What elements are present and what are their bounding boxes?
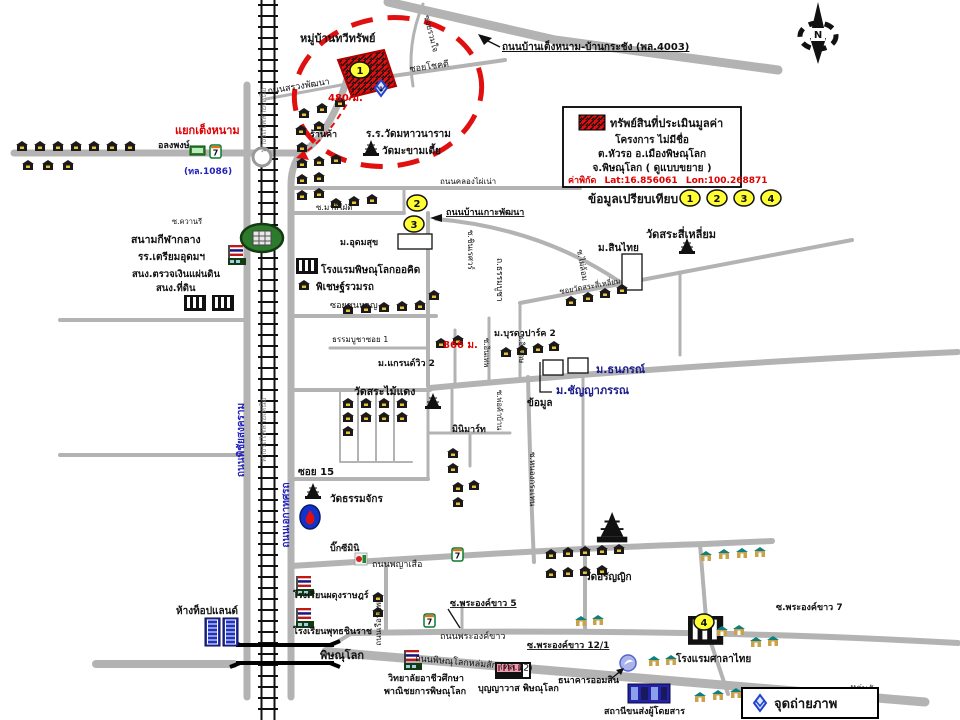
bigc-mini-icon: [355, 553, 367, 565]
road-bankoh-path: [436, 219, 620, 282]
soi-chinnaret-label2: ซ.ชินเรศวร์: [466, 230, 476, 270]
m-sinthai-label: ม.สินไทย: [598, 241, 639, 254]
distance-480-label: 480 ม.: [328, 93, 363, 104]
compass-south-spike: [810, 38, 826, 64]
soi-inket-label: ซ.อินเกษ: [517, 334, 526, 363]
wat-srasiliam-label: วัดสระสี่เหลี่ยม: [646, 226, 716, 241]
m-thanaporn-block-2: [568, 358, 588, 373]
soi-pokaban-label: ซ.พ่อค้าบ้าน: [495, 390, 504, 430]
map-labels: หมู่บ้านทวีทรัพย์ ถนนสรวงพัฒนา ซอยรวมใจ …: [131, 14, 879, 717]
shop-label: ร้านค้า: [310, 129, 337, 140]
legend-coord-label: ค่าพิกัด: [568, 175, 596, 186]
legend-district: ต.หัวรอ อ.เมืองพิษณุโลก: [598, 147, 706, 160]
tengnam-road-arrow: [478, 34, 492, 45]
wat-sramaidaeng-label: วัดสระไม้แดง: [354, 385, 415, 398]
bus-station-label: สถานีขนส่งผู้โดยสาร: [604, 705, 685, 717]
topland-building-icon-1: [205, 618, 220, 646]
m-grandview-label: ม.แกรนด์วิว 2: [378, 357, 435, 369]
soi-phraongkhao5-label: ซ.พระองค์ขาว 5: [450, 597, 517, 609]
route-1086-label: (ทล.1086): [184, 167, 232, 177]
soi-kwanree-label: ซ.ควานรี: [172, 217, 202, 226]
topland-building-icon-2: [223, 618, 238, 646]
village-label: หมู่บ้านทวีทรัพย์: [300, 32, 375, 46]
land-office-label: สนง.ที่ดิน: [156, 280, 196, 294]
tengnam-road-arrow-line: [486, 40, 500, 47]
hotel-orchid-label: โรงแรมพิษณุโลกออคิด: [320, 263, 420, 276]
m-thanaporn-block-1: [543, 360, 563, 375]
wat-aranyik-label: วัดอรัญญิก: [585, 571, 632, 583]
legend-project: โครงการ ไม่มีชื่อ: [614, 132, 689, 146]
college-label-line2: พาณิชยการพิษณุโลก: [384, 685, 466, 697]
m-udomsuk-label: ม.อุดมสุข: [340, 238, 378, 248]
seven-eleven-icon-2: [452, 548, 463, 561]
seven-eleven-icon-1: [210, 145, 221, 158]
pichet-label: พิเชษฐ์รวมรถ: [316, 281, 374, 293]
legend-lon: Lon:100.268871: [686, 176, 768, 186]
comparison-legend-2-num: 2: [714, 194, 721, 205]
road-ekathotsarot-label: ถนนเอกาทศรถ: [281, 482, 292, 547]
road-bankoh-label: ถนนบ้านเกาะพัฒนา: [446, 207, 524, 218]
khomun-label: ข้อมูล: [527, 397, 553, 410]
comparison-marker-1-number: 1: [357, 66, 364, 77]
comparison-marker-4-number: 4: [701, 618, 708, 629]
m-sinthai-block: [622, 254, 642, 290]
m-thanaporn-label: ม.ธนภรณ์: [596, 363, 646, 376]
seven-eleven-icon-3: [424, 614, 435, 627]
soi-phraongkhao121-label: ซ.พระองค์ขาว 12/1: [527, 639, 609, 651]
road-tengnam-label: ถนนบ้านเต็งหนาม-บ้านกระชัง (พล.4003): [502, 39, 689, 53]
comparison-marker-2-number: 2: [414, 199, 421, 210]
wat-aranyik-temple-icon: [597, 512, 627, 542]
railway-label-top: ทางรถไฟสายเหนือ: [259, 87, 268, 152]
soi-pailom-label: ซ.ไผ่ล้อม: [575, 249, 589, 282]
minimart-label: มินิมาร์ท: [452, 423, 486, 435]
highway12-label: ถนนพิษณุโลกหล่มสัก (ทล.12): [415, 653, 533, 674]
ptt-gas-station-icon: [300, 505, 320, 529]
road-payasuea-label: ถนนพญาเสือ: [372, 559, 422, 570]
land-office-building-icon: [212, 295, 234, 311]
soi-phraongkhao7-label: ซ.พระองค์ขาว 7: [776, 601, 843, 613]
boonyawat-label: บุญญาวาส พิษณุโลก: [478, 682, 559, 694]
compass-north-spike: [811, 2, 825, 32]
legend-coords: ค่าพิกัด Lat:16.856061 Lon:100.268871: [568, 175, 768, 186]
photo-point-number: 1: [379, 86, 383, 93]
soi15-label: ซอย 15: [298, 467, 334, 478]
phutthachinnarat-school-flag-icon: [296, 608, 314, 628]
wat-makhamtia-temple-icon: [363, 140, 379, 156]
unlabeled-box: [398, 234, 432, 249]
soi-chunhan-label: ซอยชุนหาญ: [330, 301, 378, 311]
property-valuation-map: 7: [0, 0, 960, 720]
hotel-salathai-label: โรงแรมศาลาไทย: [675, 652, 751, 665]
left-side-lanes: [60, 320, 247, 455]
comparison-legend-1-num: 1: [687, 194, 694, 205]
legend-title: ทรัพย์สินที่ประเมินมูลค่า: [610, 115, 723, 131]
road-rueanpae-label: ถนนเรือนแพ: [374, 602, 383, 646]
soi-ruamjai-label: ซอยรวมใจ: [422, 14, 440, 53]
soi-malee-label: ซ.มาลีใฝ่ดี: [316, 203, 352, 212]
school-phutthachinnarat-label: โรงเรียนพุทธชินราช: [292, 625, 372, 637]
railway-label-mid: ทางรถไฟสายเหนือ: [259, 397, 268, 462]
legend-lat: Lat:16.856061: [604, 176, 677, 186]
stadium-icon: [241, 224, 283, 252]
road-phichaisongkram-label: ถนนพิชัยสงคราม: [235, 403, 247, 477]
stadium-label: สนามกีฬากลาง: [131, 233, 201, 246]
junction-tengnam-label: แยกเต็งหนาม: [175, 123, 240, 137]
thammabucha-soi1-label: ธรรมบูชาซอย 1: [332, 335, 388, 345]
compass-rose-icon: N: [800, 2, 836, 64]
orchid-hotel-building-icon: [296, 258, 318, 274]
audit-office-building-icon: [184, 295, 206, 311]
school-phadungrat-label: โรงเรียนผดุงราษฎร์: [292, 589, 369, 601]
m-chanyapan-label: ม.ชัญญาภรรณ: [556, 384, 630, 397]
compass-n-label: N: [814, 30, 822, 41]
comparison-legend-3-num: 3: [741, 194, 748, 205]
wat-thammachak-temple-icon: [305, 483, 321, 499]
distance-866-label: 866 ม.: [443, 340, 478, 351]
map-canvas: 7: [0, 0, 960, 720]
alongpong-label: อลงพงษ์: [158, 139, 190, 151]
mid-road-main: [430, 352, 958, 388]
legend-property-swatch: [579, 115, 605, 130]
legend-province: จ.พิษณุโลก ( ดูแบบขยาย ): [592, 161, 711, 175]
soi5-pointer-line: [448, 609, 460, 628]
bigc-mini-label: บิ๊กซีมินิ: [330, 541, 360, 554]
legend-box: ทรัพย์สินที่ประเมินมูลค่า โครงการ ไม่มีช…: [563, 107, 768, 187]
soi-nongkraten-label: ซ.หนองกระเทน: [528, 452, 537, 507]
topland-label: ห้างท็อปแลนด์: [176, 603, 238, 617]
wat-thammachak-label: วัดธรรมจักร: [330, 493, 383, 505]
comparison-legend-4-num: 4: [768, 194, 775, 205]
phitsanulok-label: พิษณุโลก: [320, 648, 364, 663]
bus-station-building-icon: [628, 684, 670, 703]
triamudom-school-flag-icon: [228, 245, 246, 265]
school-mahawanaram-label: ร.ร.วัดมหาวนาราม: [366, 128, 451, 140]
audit-office-label: สนง.ตรวจเงินแผ่นดิน: [132, 269, 220, 280]
comparison-label: ข้อมูลเปรียบเทียบ: [588, 192, 678, 207]
photo-legend-label: จุดถ่ายภาพ: [774, 697, 837, 712]
soi-inthep-label: ซ.อินเทพ: [482, 338, 491, 368]
bank-omsin-label: ธนาคารออมสิน: [558, 675, 620, 686]
shop-stall-icon: [190, 146, 205, 155]
comparison-marker-3-number: 3: [411, 220, 418, 231]
road-klongpainao-label: ถนนคลองไผ่เน่า: [440, 177, 496, 186]
road-thammabucha-label: ถ.ธรรมบูชา: [494, 258, 504, 302]
road-phraongkhao-label: ถนนพระองค์ขาว: [440, 630, 505, 642]
comparison-row: ข้อมูลเปรียบเทียบ 1 2 3 4: [588, 190, 781, 207]
school-triamudom-label: รร.เตรียมอุดมฯ: [138, 251, 205, 263]
wat-makhamtia-label: วัดมะขามเตี้ย: [382, 143, 441, 157]
photo-legend-box: จุดถ่ายภาพ: [742, 688, 878, 718]
college-label-line1: วิทยาลัยอาชีวศึกษา: [387, 673, 464, 684]
